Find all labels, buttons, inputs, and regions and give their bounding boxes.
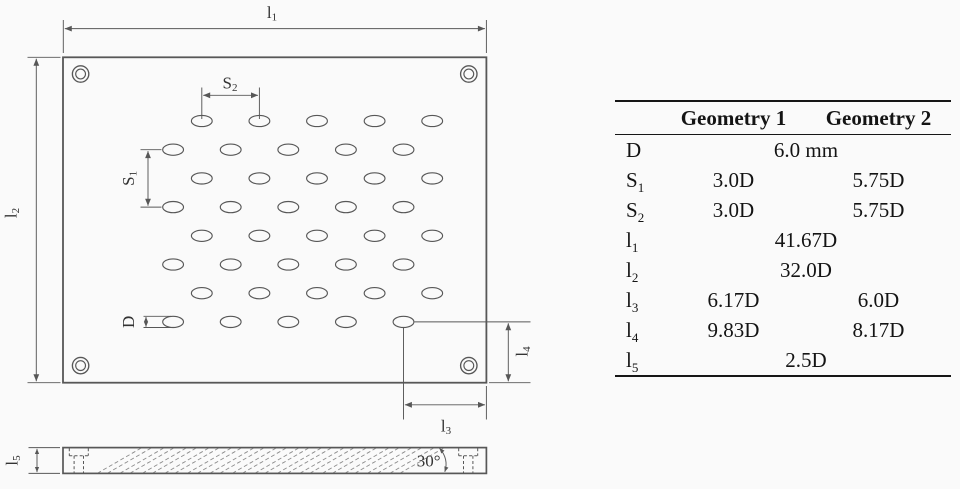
- inclined-hole: [307, 115, 328, 126]
- hatch-line: [300, 447, 345, 473]
- bolt-hole-bottom-left: [72, 357, 88, 373]
- hole-array: [163, 115, 443, 327]
- inclined-hole: [278, 144, 299, 155]
- dim-l1: l1: [63, 3, 486, 53]
- hatch-line: [265, 447, 310, 473]
- side-view: l5 30°: [3, 447, 487, 473]
- bolt-hole-top-right: [461, 66, 477, 82]
- value-l3-geometry2: 6.0D: [806, 285, 951, 315]
- hatch-line: [355, 447, 400, 473]
- inclined-hole: [220, 144, 241, 155]
- hatch-line: [288, 447, 333, 473]
- table-row-l1: l1 41.67D: [615, 225, 951, 255]
- inclined-hole: [249, 230, 270, 241]
- value-l5: 2.5D: [661, 345, 951, 376]
- inclined-hole: [163, 259, 184, 270]
- inclined-hole: [364, 288, 385, 299]
- hatch-line: [233, 447, 278, 473]
- geometry-table: Geometry 1 Geometry 2 D 6.0 mm S1 3.0D 5…: [615, 100, 951, 377]
- hatch-line: [108, 447, 153, 473]
- value-l3-geometry1: 6.17D: [661, 285, 806, 315]
- bolt-hole-bottom-right: [461, 357, 477, 373]
- hatch-line: [143, 447, 188, 473]
- inclined-hole: [307, 230, 328, 241]
- hatch-line: [323, 447, 368, 473]
- col-header-geometry-1: Geometry 1: [661, 101, 806, 135]
- dim-s1: S1: [119, 150, 162, 207]
- inclined-hole: [220, 259, 241, 270]
- value-S1-geometry1: 3.0D: [661, 165, 806, 195]
- inclined-hole: [191, 288, 212, 299]
- inclined-hole: [393, 316, 414, 327]
- inclined-hole: [364, 173, 385, 184]
- hatch-line: [220, 447, 265, 473]
- dim-label-l2: l2: [2, 208, 23, 218]
- row-label-l5: l5: [615, 345, 661, 376]
- col-header-geometry-2: Geometry 2: [806, 101, 951, 135]
- angle-label: 30°: [417, 452, 441, 471]
- dim-label-l3: l3: [441, 417, 452, 438]
- hatch-line: [210, 447, 255, 473]
- hatch-line: [278, 447, 323, 473]
- dim-label-l1: l1: [267, 3, 277, 24]
- value-S1-geometry2: 5.75D: [806, 165, 951, 195]
- value-l4-geometry1: 9.83D: [661, 315, 806, 345]
- inclined-hole: [336, 316, 357, 327]
- inclined-hole: [163, 316, 184, 327]
- table-row-l5: l5 2.5D: [615, 345, 951, 376]
- value-S2-geometry1: 3.0D: [661, 195, 806, 225]
- inclined-hole: [278, 202, 299, 213]
- dim-label-d: D: [119, 316, 138, 328]
- inclined-hole: [220, 316, 241, 327]
- row-label-l2: l2: [615, 255, 661, 285]
- hatch-line: [175, 447, 220, 473]
- dim-label-l5: l5: [3, 455, 24, 466]
- inclined-hole: [422, 173, 443, 184]
- inclined-hole: [336, 144, 357, 155]
- inclined-hole: [393, 202, 414, 213]
- hatch-line: [368, 447, 413, 473]
- value-S2-geometry2: 5.75D: [806, 195, 951, 225]
- table-corner-cell: [615, 101, 661, 135]
- engineering-drawing: l1 l2 S2 S1: [0, 0, 600, 489]
- row-label-l1: l1: [615, 225, 661, 255]
- inclined-hole: [163, 144, 184, 155]
- table-row-S2: S2 3.0D 5.75D: [615, 195, 951, 225]
- hatch-line: [165, 447, 210, 473]
- hatch-line: [153, 447, 198, 473]
- hatch-line: [345, 447, 390, 473]
- inclined-hole: [336, 202, 357, 213]
- table-row-S1: S1 3.0D 5.75D: [615, 165, 951, 195]
- inclined-hole: [278, 316, 299, 327]
- hatch-line: [98, 447, 143, 473]
- inclined-hole: [336, 259, 357, 270]
- hatch-line: [243, 447, 288, 473]
- inclined-hole: [422, 115, 443, 126]
- hatch-line: [310, 447, 355, 473]
- inclined-hole: [307, 288, 328, 299]
- hatch-line: [198, 447, 243, 473]
- table-row-l2: l2 32.0D: [615, 255, 951, 285]
- inclined-hole: [307, 173, 328, 184]
- inclined-hole: [249, 173, 270, 184]
- dim-label-s1: S1: [119, 171, 140, 186]
- inclined-hole: [163, 202, 184, 213]
- top-view: l1 l2 S2 S1: [2, 3, 534, 437]
- dim-label-l4: l4: [513, 346, 534, 357]
- hatch-line: [130, 447, 175, 473]
- hatch-line: [188, 447, 233, 473]
- table-row-D: D 6.0 mm: [615, 135, 951, 166]
- dim-s2: S2: [202, 74, 260, 120]
- inclined-hole: [364, 115, 385, 126]
- row-label-D: D: [615, 135, 661, 166]
- table-header-row: Geometry 1 Geometry 2: [615, 101, 951, 135]
- figure-canvas: l1 l2 S2 S1: [0, 0, 960, 489]
- row-label-l4: l4: [615, 315, 661, 345]
- hatch-line: [255, 447, 300, 473]
- inclined-hole: [393, 259, 414, 270]
- value-l4-geometry2: 8.17D: [806, 315, 951, 345]
- inclined-hole: [220, 202, 241, 213]
- inclined-hole: [393, 144, 414, 155]
- table-row-l3: l3 6.17D 6.0D: [615, 285, 951, 315]
- dim-label-s2: S2: [223, 74, 238, 95]
- inclined-hole: [422, 288, 443, 299]
- hatch-line: [333, 447, 378, 473]
- inclined-hole: [191, 173, 212, 184]
- row-label-S1: S1: [615, 165, 661, 195]
- row-label-S2: S2: [615, 195, 661, 225]
- value-l2: 32.0D: [661, 255, 951, 285]
- inclined-hole: [364, 230, 385, 241]
- hatch-line: [120, 447, 165, 473]
- dim-l4: l4: [415, 322, 534, 383]
- counterbore-right: [459, 448, 478, 473]
- counterbore-left: [69, 448, 88, 473]
- inclined-holes-hatch: [98, 447, 446, 473]
- plate-outline: [63, 57, 486, 382]
- value-D: 6.0 mm: [661, 135, 951, 166]
- inclined-hole: [249, 288, 270, 299]
- inclined-hole: [422, 230, 443, 241]
- bolt-hole-top-left: [72, 66, 88, 82]
- table-row-l4: l4 9.83D 8.17D: [615, 315, 951, 345]
- value-l1: 41.67D: [661, 225, 951, 255]
- row-label-l3: l3: [615, 285, 661, 315]
- dim-l5: l5: [3, 448, 61, 474]
- angle-annotation: 30°: [417, 448, 446, 472]
- inclined-hole: [191, 230, 212, 241]
- dim-l2: l2: [2, 57, 61, 382]
- inclined-hole: [278, 259, 299, 270]
